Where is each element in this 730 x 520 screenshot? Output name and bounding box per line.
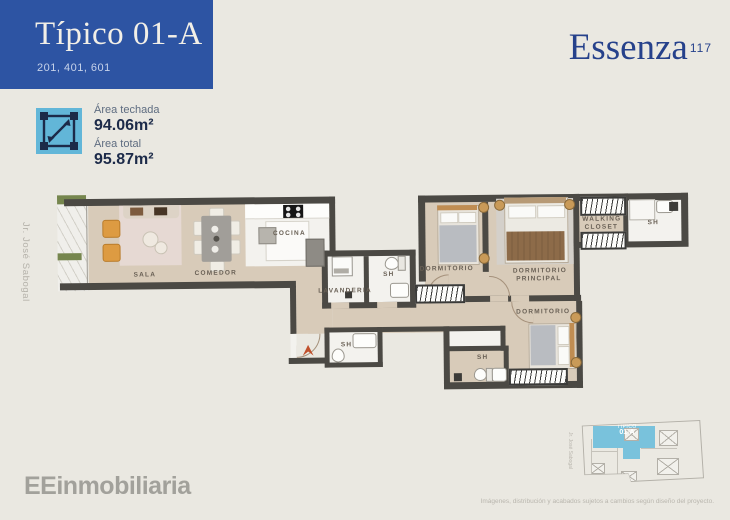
nightstand	[494, 200, 505, 211]
nightstand	[478, 202, 489, 213]
plate	[213, 236, 219, 242]
balcony-floor	[57, 199, 88, 291]
keyplan-partition	[591, 451, 617, 452]
toilet-tank	[398, 256, 406, 271]
keyplan-street-label: Jr. José Sabogal	[567, 432, 573, 469]
washer-front	[334, 268, 349, 273]
pillow	[440, 212, 458, 223]
plate	[212, 246, 219, 253]
door-gap	[331, 302, 349, 308]
room-label-sh-entrada: SH	[341, 341, 353, 349]
shower	[629, 199, 655, 220]
nightstand	[564, 199, 575, 210]
keyplan-floor: TÍPICO 01-A	[579, 421, 703, 481]
wall-segment	[290, 286, 297, 334]
disclaimer-text: Imágenes, distribución y acabados sujeto…	[470, 498, 714, 505]
hedge	[58, 253, 82, 260]
wall-segment	[325, 362, 383, 368]
room-label-lavanderia: LAVANDERIA	[318, 287, 372, 296]
room-label-sala: SALA	[134, 271, 157, 279]
room-label-dormitorio-1: DORMITORIO	[420, 265, 474, 274]
bed-blanket	[530, 325, 555, 365]
sofa-cushion	[130, 207, 143, 215]
room-label-walking-closet: WALKING CLOSET	[582, 215, 620, 231]
duct	[669, 202, 678, 211]
bed-headboard	[437, 205, 477, 210]
duct	[454, 373, 462, 381]
keyplan-highlighted-unit	[623, 448, 640, 459]
bed-headboard	[504, 197, 566, 204]
bath-counter	[352, 333, 376, 348]
keyplan-shaft	[657, 458, 679, 475]
keyplan: TÍPICO 01-A	[578, 420, 704, 482]
closet-hangers	[580, 231, 626, 249]
keyplan-unit-number: 01-A	[613, 430, 641, 436]
shaft-floor xbox	[448, 330, 500, 348]
pillow	[558, 346, 570, 365]
door-gap	[377, 302, 397, 308]
bed-blanket	[506, 231, 564, 261]
armchair	[102, 220, 120, 238]
room-label-cocina: COCINA	[273, 230, 306, 238]
bath-sink	[492, 368, 507, 382]
keyplan-unit-label: TÍPICO 01-A	[613, 424, 641, 436]
company-logo: EEinmobiliaria	[24, 472, 191, 501]
room-label-sh-hall: SH	[383, 271, 395, 279]
refrigerator	[305, 239, 324, 267]
closet-hangers	[415, 284, 465, 304]
wall-segment	[329, 196, 336, 252]
entrance-arrow-icon	[302, 344, 315, 357]
nightstand	[571, 357, 582, 368]
wall-segment	[447, 346, 509, 352]
sofa-cushion	[154, 207, 167, 215]
wall-segment	[681, 193, 689, 245]
keyplan-partition	[591, 439, 592, 475]
pillow	[537, 205, 565, 218]
room-label-dormitorio-2: DORMITORIO	[516, 308, 570, 317]
pillow	[557, 326, 569, 345]
room-label-sh-dormitorio-2: SH	[477, 354, 489, 362]
element	[303, 345, 314, 356]
nightstand	[479, 253, 490, 264]
toilet	[385, 257, 399, 270]
wall-segment	[289, 358, 329, 364]
wall-segment	[364, 256, 370, 306]
room-label-sh-principal: SH	[648, 219, 660, 227]
bath-sink	[390, 283, 409, 298]
wall-segment	[60, 281, 296, 290]
pillow	[458, 212, 476, 223]
room-label-comedor: COMEDOR	[195, 269, 237, 277]
pillow	[508, 205, 536, 218]
room-label-dormitorio-principal: DORMITORIO PRINCIPAL	[513, 267, 565, 284]
coffee-table	[154, 241, 167, 254]
stove	[283, 205, 303, 218]
bed-blanket	[439, 225, 476, 262]
keyplan-partition	[617, 448, 618, 475]
plate	[211, 226, 218, 233]
armchair	[103, 244, 121, 262]
keyplan-partition	[641, 448, 677, 449]
nightstand	[570, 312, 581, 323]
closet-hangers	[509, 368, 568, 386]
wall-segment	[443, 326, 450, 388]
closet-hangers	[580, 196, 626, 215]
keyplan-shaft	[659, 430, 678, 446]
keyplan-shaft	[591, 463, 605, 474]
toilet	[332, 348, 345, 362]
